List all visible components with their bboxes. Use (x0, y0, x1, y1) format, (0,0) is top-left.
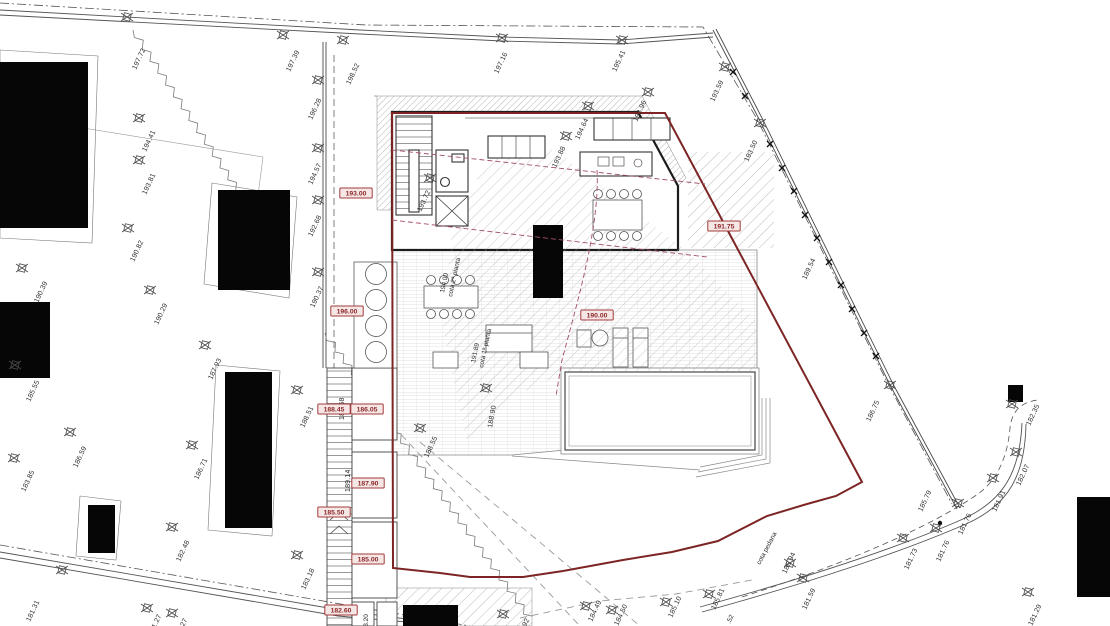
level-value: 187.90 (358, 481, 379, 488)
annotation-note: 183.20 (363, 614, 370, 626)
level-value: 182.60 (331, 608, 352, 615)
survey-marker-icon (144, 286, 156, 294)
level-value: 185.00 (358, 557, 379, 564)
survey-elevation-label: 181.59 (801, 587, 817, 610)
survey-elevation-label: 189.14 (345, 469, 352, 492)
survey-marker-icon (122, 224, 134, 232)
outdoor-stair-layer (327, 262, 397, 626)
survey-marker-icon (719, 63, 731, 71)
building-footprint (1077, 497, 1110, 597)
survey-elevation-label: 197.39 (285, 49, 301, 72)
building-footprint (1008, 385, 1023, 402)
survey-elevation-label: 198.52 (345, 62, 361, 85)
survey-marker-icon (291, 386, 303, 394)
survey-marker-icon (56, 566, 68, 574)
level-value: 188.45 (324, 407, 345, 414)
survey-marker-icon (133, 114, 145, 122)
survey-marker-icon (64, 428, 76, 436)
survey-elevation-label: 181.31 (25, 599, 41, 622)
building-footprint (225, 372, 272, 528)
survey-elevation-label: 194.57 (307, 162, 323, 185)
contour-zigzag (133, 30, 237, 192)
survey-elevation-label: 185.10 (667, 595, 683, 618)
survey-marker-icon (277, 31, 289, 39)
survey-marker-icon (141, 604, 153, 612)
survey-elevation-label: 193.59 (709, 79, 725, 102)
survey-marker-icon (199, 341, 211, 349)
building-footprint (403, 605, 458, 626)
survey-elevation-label: 197.72 (131, 47, 147, 70)
level-value: 190.00 (587, 313, 608, 320)
survey-marker-icon (312, 196, 324, 204)
survey-marker-icon (312, 268, 324, 276)
survey-marker-icon (337, 36, 349, 44)
survey-elevation-label: 185.79 (917, 489, 933, 512)
survey-marker-icon (16, 264, 28, 272)
survey-elevation-label: 183.18 (300, 567, 316, 590)
building-footprint (88, 505, 115, 553)
survey-marker-icon (660, 598, 672, 606)
survey-elevation-label: 192.68 (307, 214, 323, 237)
survey-marker-icon (1022, 588, 1034, 596)
survey-elevation-label: 181.73 (903, 547, 919, 570)
annotation-note: cota pedana (756, 531, 779, 566)
building-footprint (0, 302, 50, 378)
survey-elevation-label: 195.41 (611, 49, 627, 72)
level-value: 185.50 (324, 510, 345, 517)
survey-marker-icon (1010, 448, 1022, 456)
survey-marker-icon (166, 609, 178, 617)
service-core (533, 225, 563, 298)
survey-marker-icon (166, 523, 178, 531)
survey-elevation-label: 187.93 (207, 357, 223, 380)
survey-elevation-label: 186.71 (193, 457, 209, 480)
survey-marker-icon (930, 524, 942, 532)
survey-elevation-label: 194.41 (141, 129, 157, 152)
architectural-site-plan: 197.72197.39198.52196.28194.41193.81194.… (0, 0, 1110, 626)
survey-elevation-label: 183.85 (20, 469, 36, 492)
survey-marker-icon (642, 88, 654, 96)
survey-elevation-label: 186.75 (865, 399, 881, 422)
survey-marker-icon (312, 144, 324, 152)
pool (561, 368, 759, 454)
survey-elevation-label: 182.35 (1025, 403, 1041, 426)
survey-elevation-label: 181.27 (173, 617, 189, 626)
survey-elevation-label: 181.76 (935, 539, 951, 562)
window-seat (488, 136, 545, 158)
survey-elevation-label: 190.29 (153, 302, 169, 325)
survey-marker-icon (312, 76, 324, 84)
site-plan-svg: 197.72197.39198.52196.28194.41193.81194.… (0, 0, 1110, 626)
survey-elevation-label: 196.28 (307, 97, 323, 120)
survey-elevation-label: 181.91 (991, 489, 1007, 512)
survey-elevation-label: 185.55 (25, 379, 41, 402)
survey-elevation-label: 186.59 (72, 445, 88, 468)
survey-elevation-label: 181.76 (957, 512, 973, 535)
building-footprint (218, 190, 290, 290)
survey-elevation-label: 182.48 (175, 539, 191, 562)
survey-marker-icon (897, 534, 909, 542)
survey-marker-icon (987, 474, 999, 482)
building-footprint (0, 62, 88, 228)
survey-elevation-label: 193.81 (141, 172, 157, 195)
survey-elevation-label: 181.29 (1027, 603, 1043, 626)
level-value: 193.00 (346, 191, 367, 198)
level-value: 191.75 (714, 224, 735, 231)
survey-elevation-label: 189.54 (801, 257, 817, 280)
survey-elevation-label: 197.16 (493, 51, 509, 74)
survey-marker-icon (580, 602, 592, 610)
survey-elevation-label: 181.27 (147, 613, 163, 626)
survey-elevation-label: 184.49 (587, 599, 603, 622)
survey-marker-icon (8, 454, 20, 462)
survey-marker-icon (291, 551, 303, 559)
level-value: 186.05 (357, 407, 378, 414)
survey-marker-icon (186, 441, 198, 449)
survey-elevation-label: 188.51 (299, 405, 315, 428)
survey-marker-icon (703, 590, 715, 598)
survey-elevation-label: 185.94 (781, 551, 797, 574)
level-value: 196.00 (337, 309, 358, 316)
survey-elevation-label: 190.39 (33, 280, 49, 303)
survey-elevation-label: 190.82 (129, 239, 145, 262)
survey-marker-icon (606, 606, 618, 614)
survey-marker-icon (133, 156, 145, 164)
kitchen-island (580, 152, 652, 176)
survey-elevation-label: 182.07 (1015, 463, 1031, 486)
survey-elevation-label: 185.81 (710, 587, 726, 610)
annotation-note: .52 (725, 613, 735, 624)
